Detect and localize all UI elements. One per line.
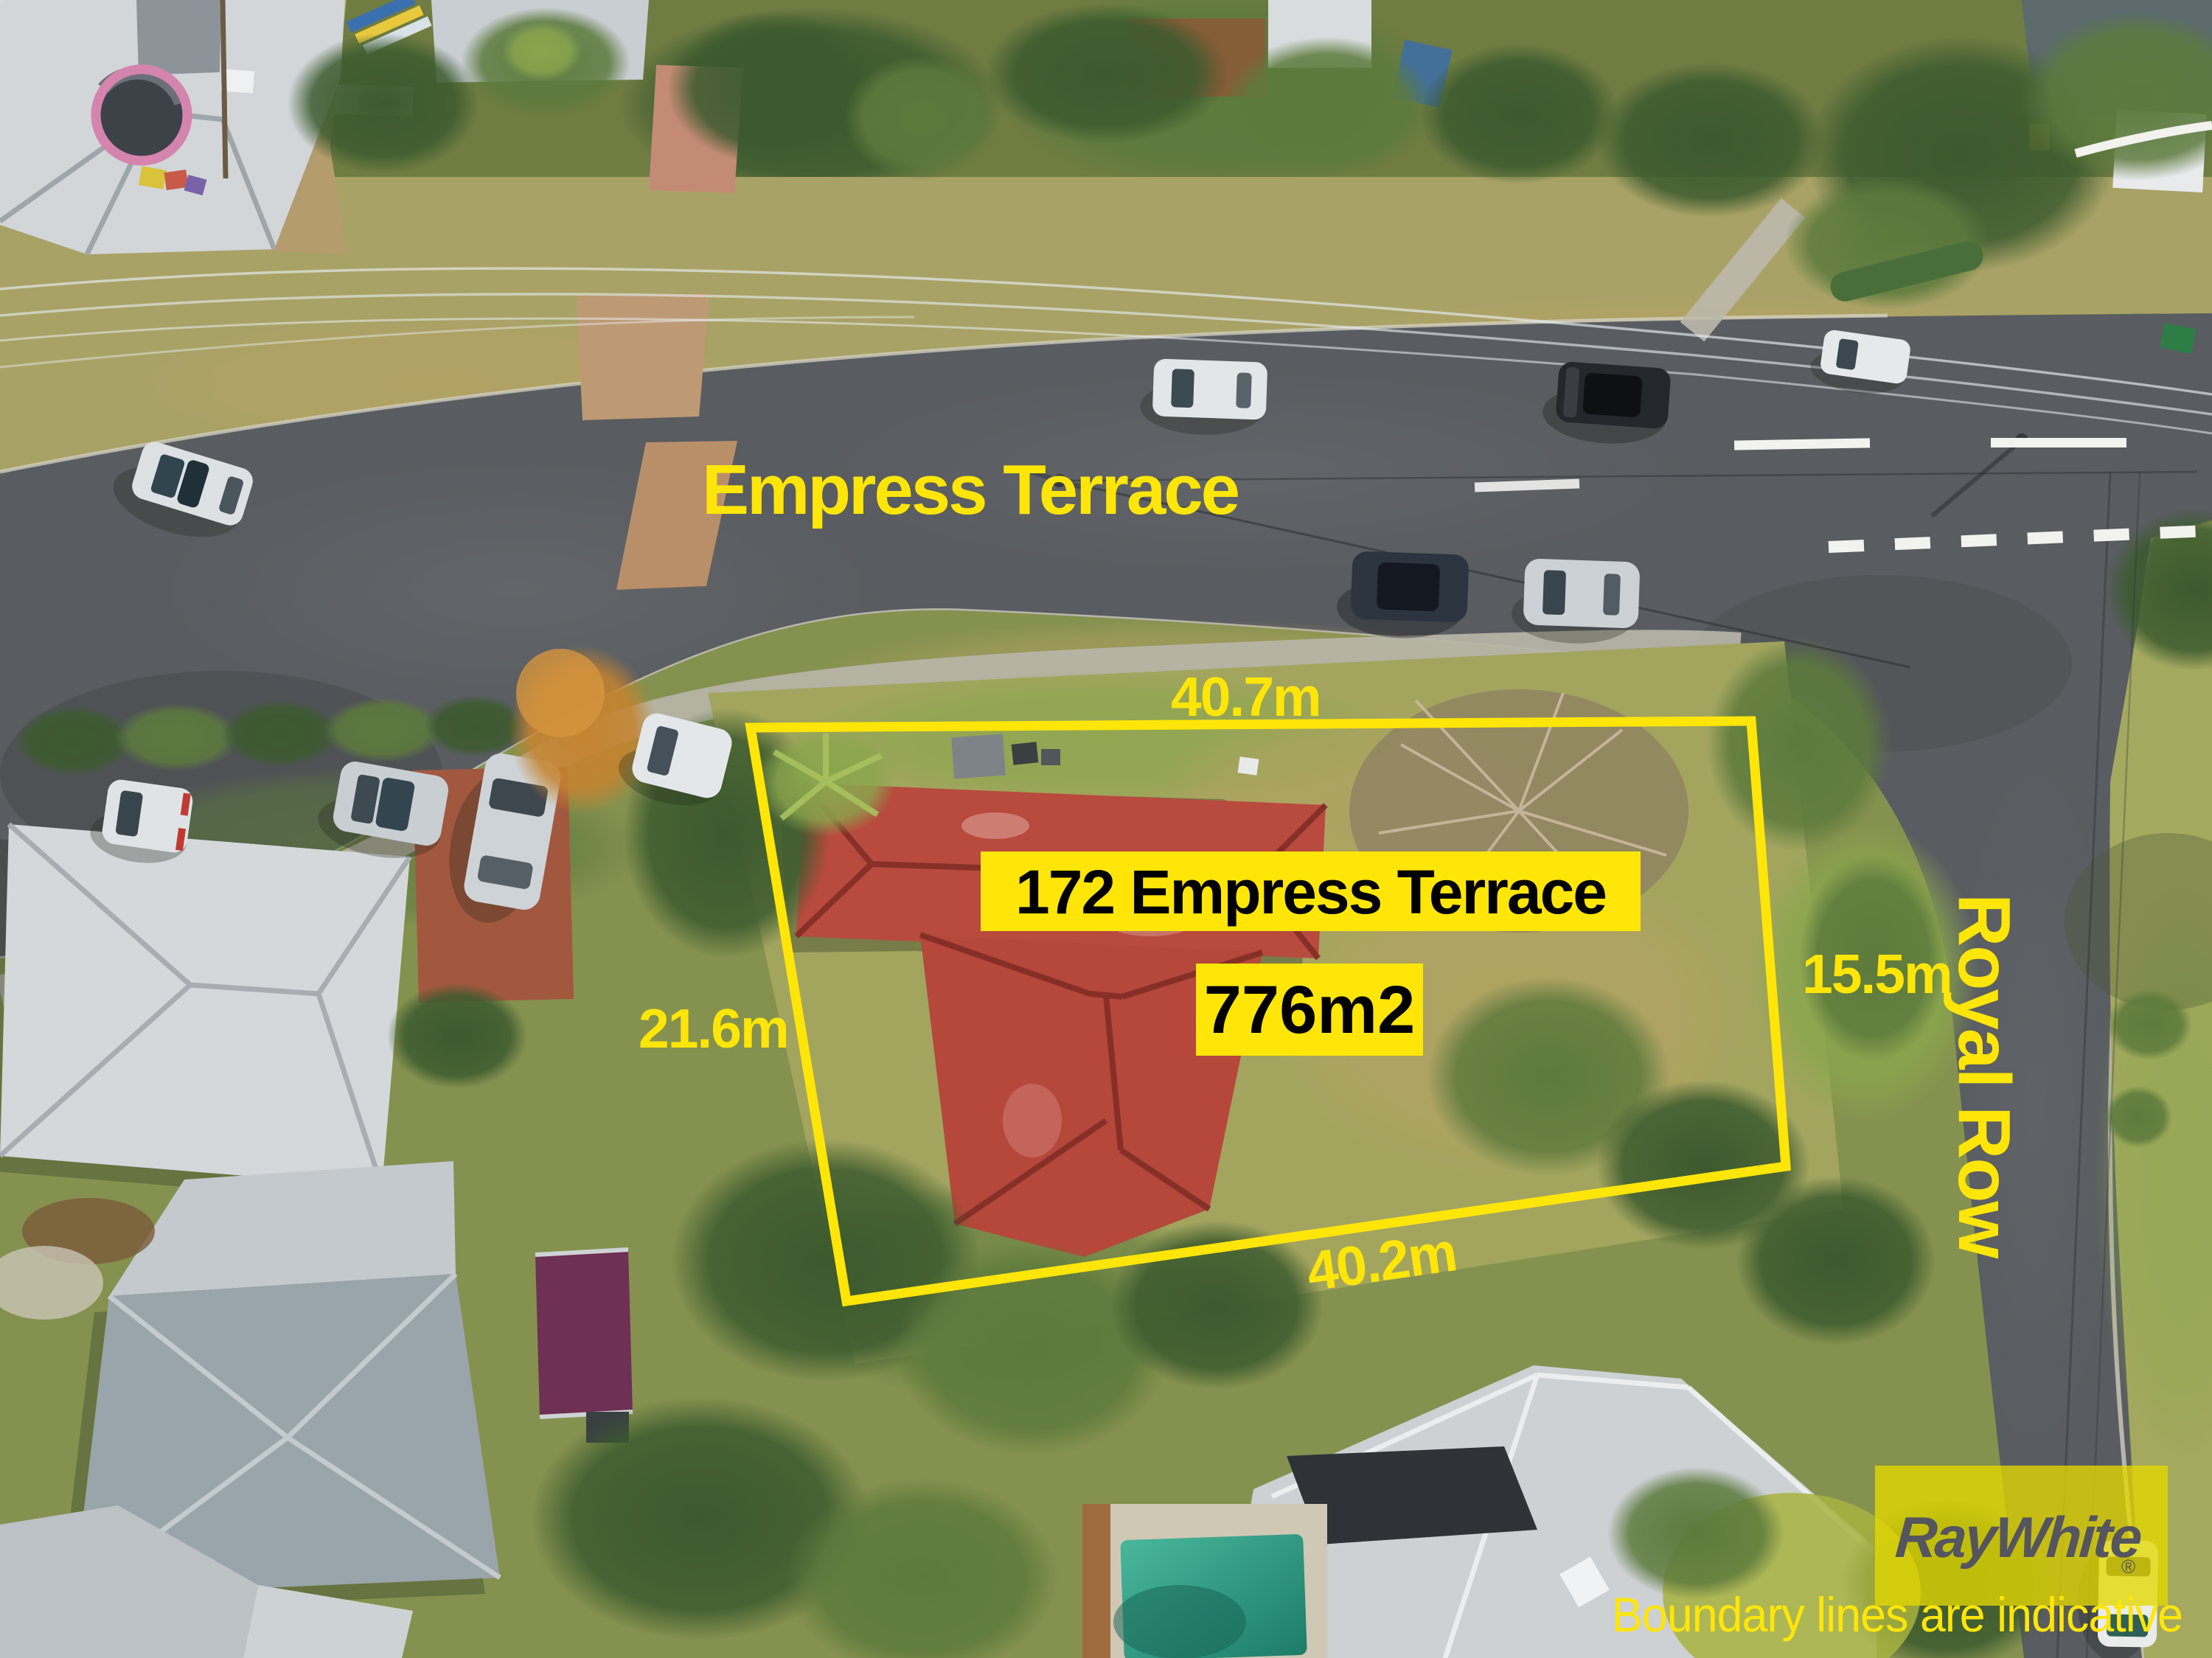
dimension-label-left: 21.6m (639, 997, 788, 1060)
street-label-royal-row: Royal Row (1941, 894, 2026, 1257)
dimension-label-top: 40.7m (1171, 665, 1321, 728)
aerial-photo (0, 0, 2212, 1658)
area-label: 776m2 (1196, 964, 1423, 1056)
aerial-listing-image: Empress Terrace Royal Row 40.7m 21.6m 15… (0, 0, 2212, 1658)
agency-logo-block: RayWhite ® (1875, 1466, 2168, 1606)
street-label-empress-terrace: Empress Terrace (702, 450, 1238, 531)
boundary-disclaimer-text: Boundary lines are indicative (1612, 1586, 2183, 1643)
address-label: 172 Empress Terrace (981, 851, 1641, 931)
registered-trademark-icon: ® (2121, 1556, 2135, 1578)
dimension-label-right: 15.5m (1802, 942, 1952, 1006)
agency-logo-text: RayWhite (1893, 1504, 2143, 1571)
